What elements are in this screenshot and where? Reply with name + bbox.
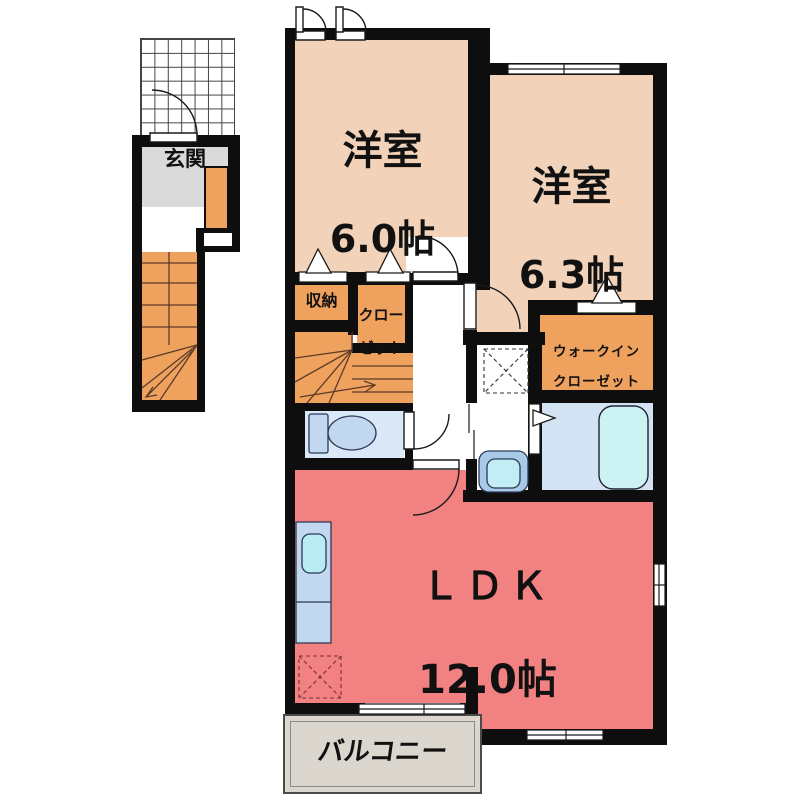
wic-line1: ウォークイン: [540, 345, 653, 360]
closet-label: クロー ゼット: [355, 290, 407, 374]
ldk-name: ＬＤＫ: [385, 565, 590, 608]
closet-line1: クロー: [355, 307, 407, 324]
bedroom2-name: 洋室: [490, 165, 653, 210]
toilet-door: [404, 412, 449, 449]
bedroom1-size: 6.0帖: [295, 218, 470, 261]
washer-space-icon: [484, 349, 528, 393]
side-window: [654, 564, 665, 606]
ldk-size: 12.0帖: [385, 658, 590, 703]
bedroom2-size: 6.3帖: [490, 254, 653, 297]
balcony-label: バルコニー: [293, 738, 472, 767]
wic-line2: クローゼット: [540, 375, 653, 390]
storage-label: 収納: [295, 292, 348, 310]
bathtub-icon: [599, 406, 648, 489]
casement-window: [296, 7, 366, 40]
washbasin-icon: [479, 451, 528, 492]
fridge-space-icon: [299, 656, 341, 698]
walk-in-closet-label: ウォークイン クローゼット: [540, 330, 653, 406]
closet-line2: ゼット: [355, 340, 407, 357]
entrance-door: [150, 90, 197, 142]
floor-plan: 玄関 洋室 6.0帖 洋室 6.3帖 収納 クロー ゼット ウォークイン クロー…: [0, 0, 800, 800]
kitchen-counter-icon: [296, 522, 331, 643]
bedroom1-name: 洋室: [295, 129, 470, 174]
stairs-1f-lines: [142, 252, 197, 400]
sliding-window: [508, 64, 620, 74]
ldk-label: ＬＤＫ 12.0帖: [385, 522, 590, 745]
bathroom-door: [529, 404, 555, 454]
bedroom2-label: 洋室 6.3帖: [490, 120, 653, 342]
washroom-sliding-door: [466, 404, 477, 459]
ldk-door: [413, 460, 459, 515]
bedroom1-label: 洋室 6.0帖: [295, 84, 470, 306]
genkan-label: 玄関: [142, 148, 228, 172]
toilet-icon: [309, 414, 376, 453]
